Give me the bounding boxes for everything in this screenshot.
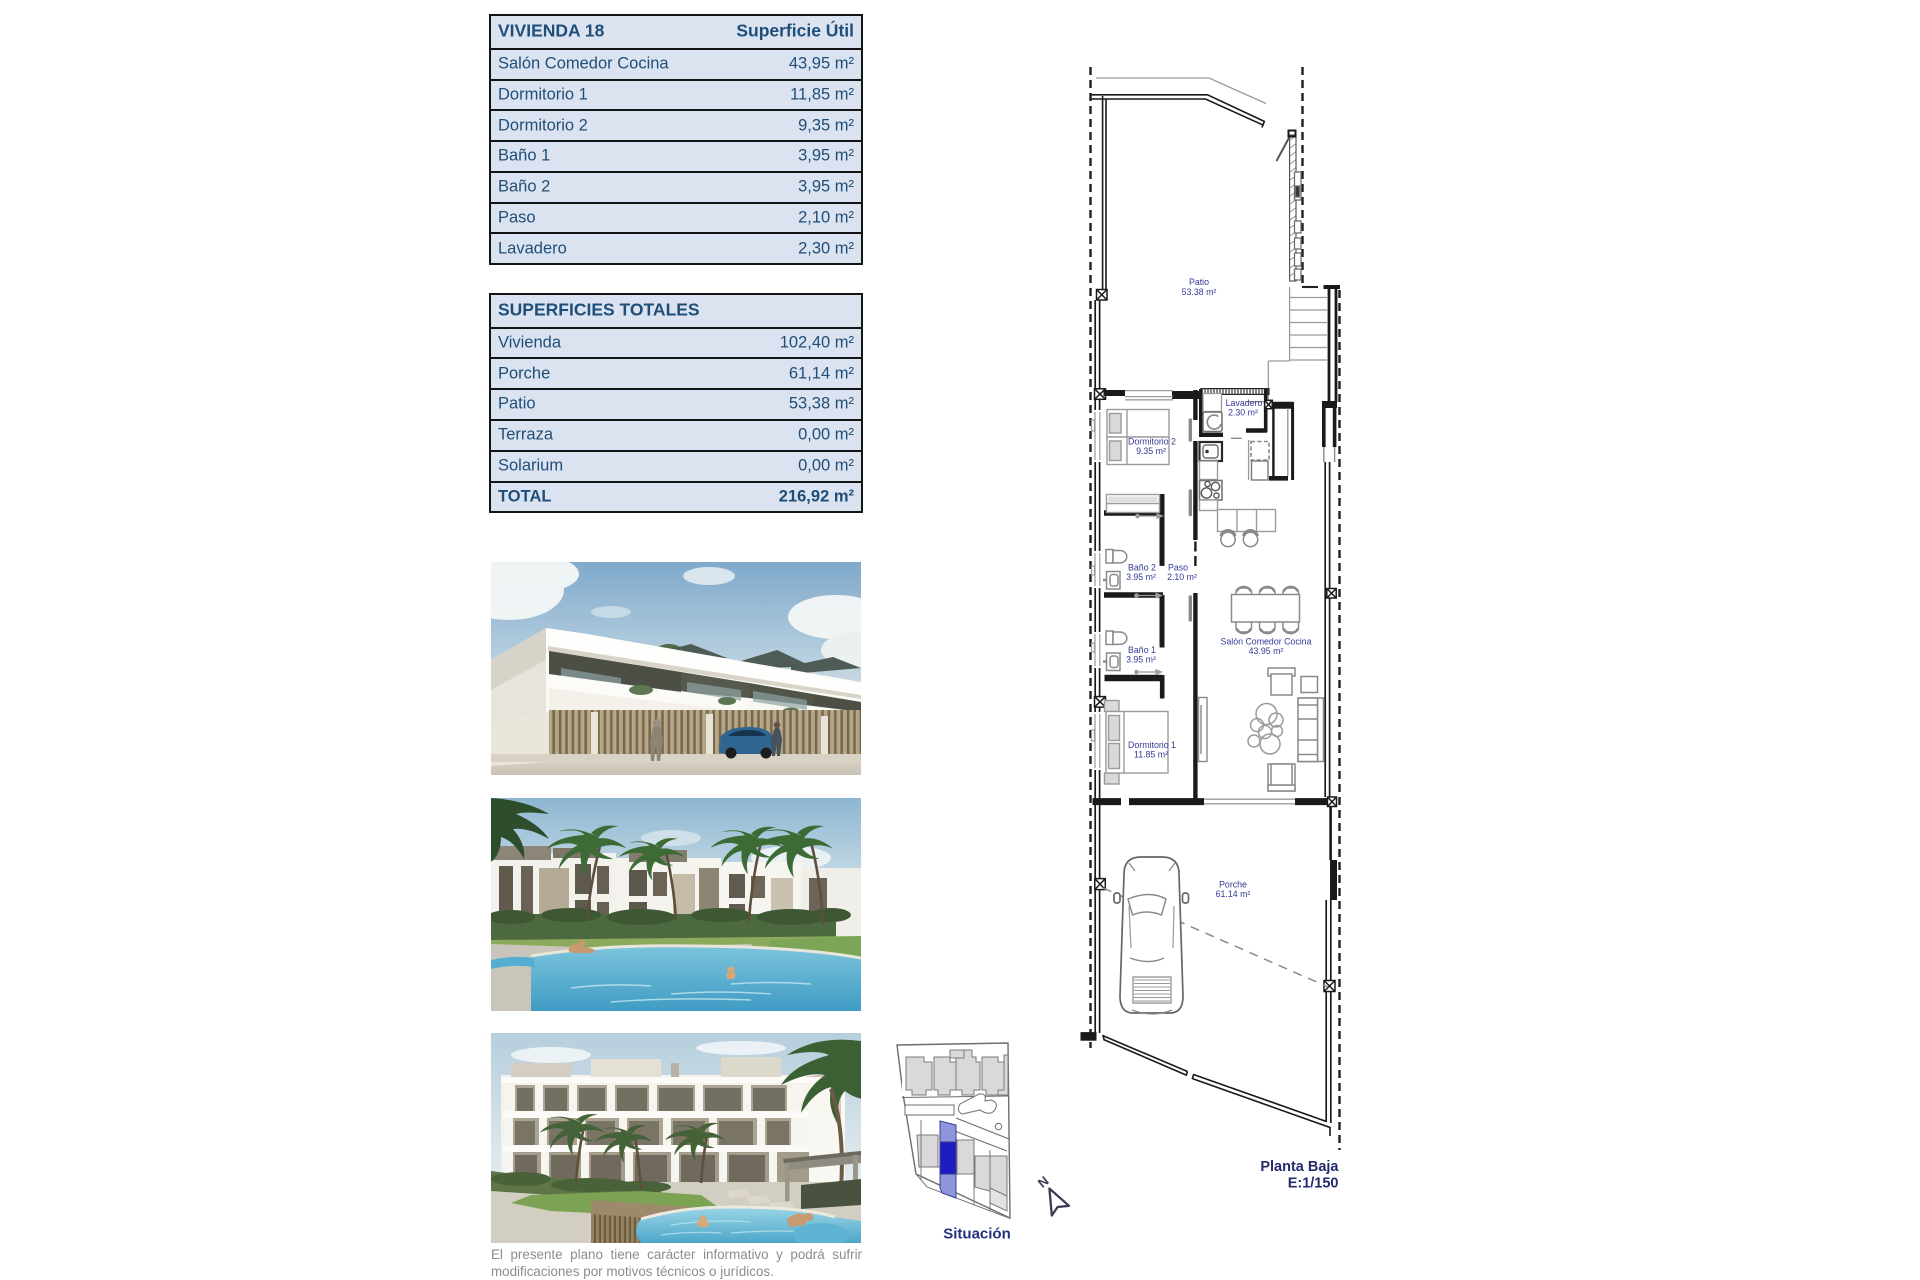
svg-text:Situación: Situación <box>943 1226 1011 1243</box>
svg-text:43.95 m²: 43.95 m² <box>1249 646 1284 656</box>
svg-text:3.95 m²: 3.95 m² <box>1126 572 1156 582</box>
svg-text:3.95 m²: 3.95 m² <box>1126 655 1156 665</box>
svg-text:Planta Baja: Planta Baja <box>1260 1159 1339 1175</box>
svg-text:Baño 2: Baño 2 <box>1128 563 1156 573</box>
svg-text:Dormitorio 2: Dormitorio 2 <box>1128 437 1176 447</box>
svg-text:9.35 m²: 9.35 m² <box>1136 446 1166 456</box>
svg-text:2.30 m²: 2.30 m² <box>1228 408 1258 418</box>
svg-text:61.14 m²: 61.14 m² <box>1216 889 1251 899</box>
svg-text:Porche: Porche <box>1219 880 1247 890</box>
svg-text:Patio: Patio <box>1189 277 1209 287</box>
svg-text:Dormitorio 1: Dormitorio 1 <box>1128 740 1176 750</box>
svg-text:Salón Comedor Cocina: Salón Comedor Cocina <box>1221 637 1312 647</box>
svg-text:Paso: Paso <box>1168 563 1188 573</box>
svg-text:2.10 m²: 2.10 m² <box>1167 572 1197 582</box>
svg-text:Baño 1: Baño 1 <box>1128 645 1156 655</box>
svg-text:Lavadero: Lavadero <box>1226 398 1263 408</box>
svg-text:E:1/150: E:1/150 <box>1288 1176 1339 1192</box>
svg-text:53.38 m²: 53.38 m² <box>1182 287 1217 297</box>
svg-text:11.85 m²: 11.85 m² <box>1134 750 1168 760</box>
